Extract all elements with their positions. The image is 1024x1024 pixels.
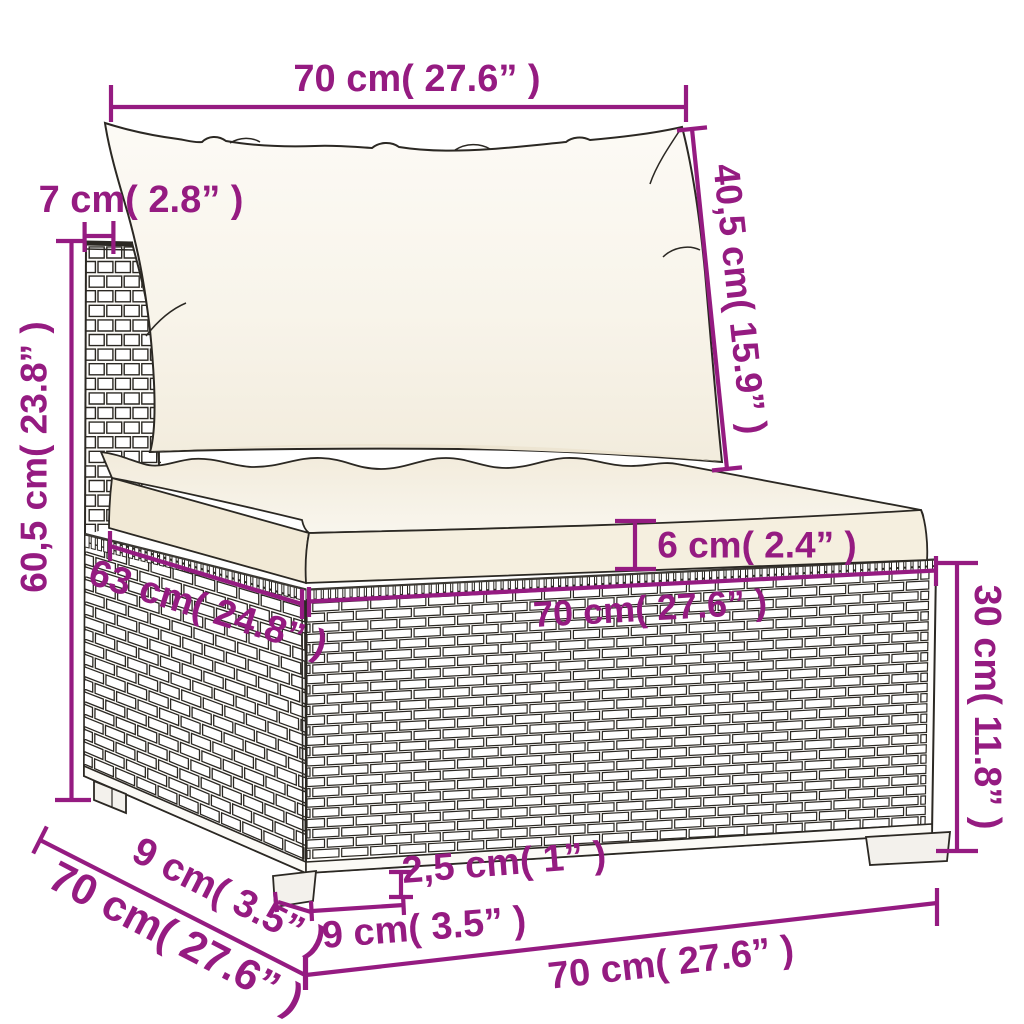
svg-text:30 cm( 11.8” ): 30 cm( 11.8” ) xyxy=(966,584,1008,829)
svg-text:7 cm( 2.8” ): 7 cm( 2.8” ) xyxy=(39,179,244,221)
svg-text:60,5 cm( 23.8” ): 60,5 cm( 23.8” ) xyxy=(14,321,55,592)
svg-text:70 cm( 27.6” ): 70 cm( 27.6” ) xyxy=(293,58,540,100)
svg-text:6 cm( 2.4” ): 6 cm( 2.4” ) xyxy=(657,525,856,566)
